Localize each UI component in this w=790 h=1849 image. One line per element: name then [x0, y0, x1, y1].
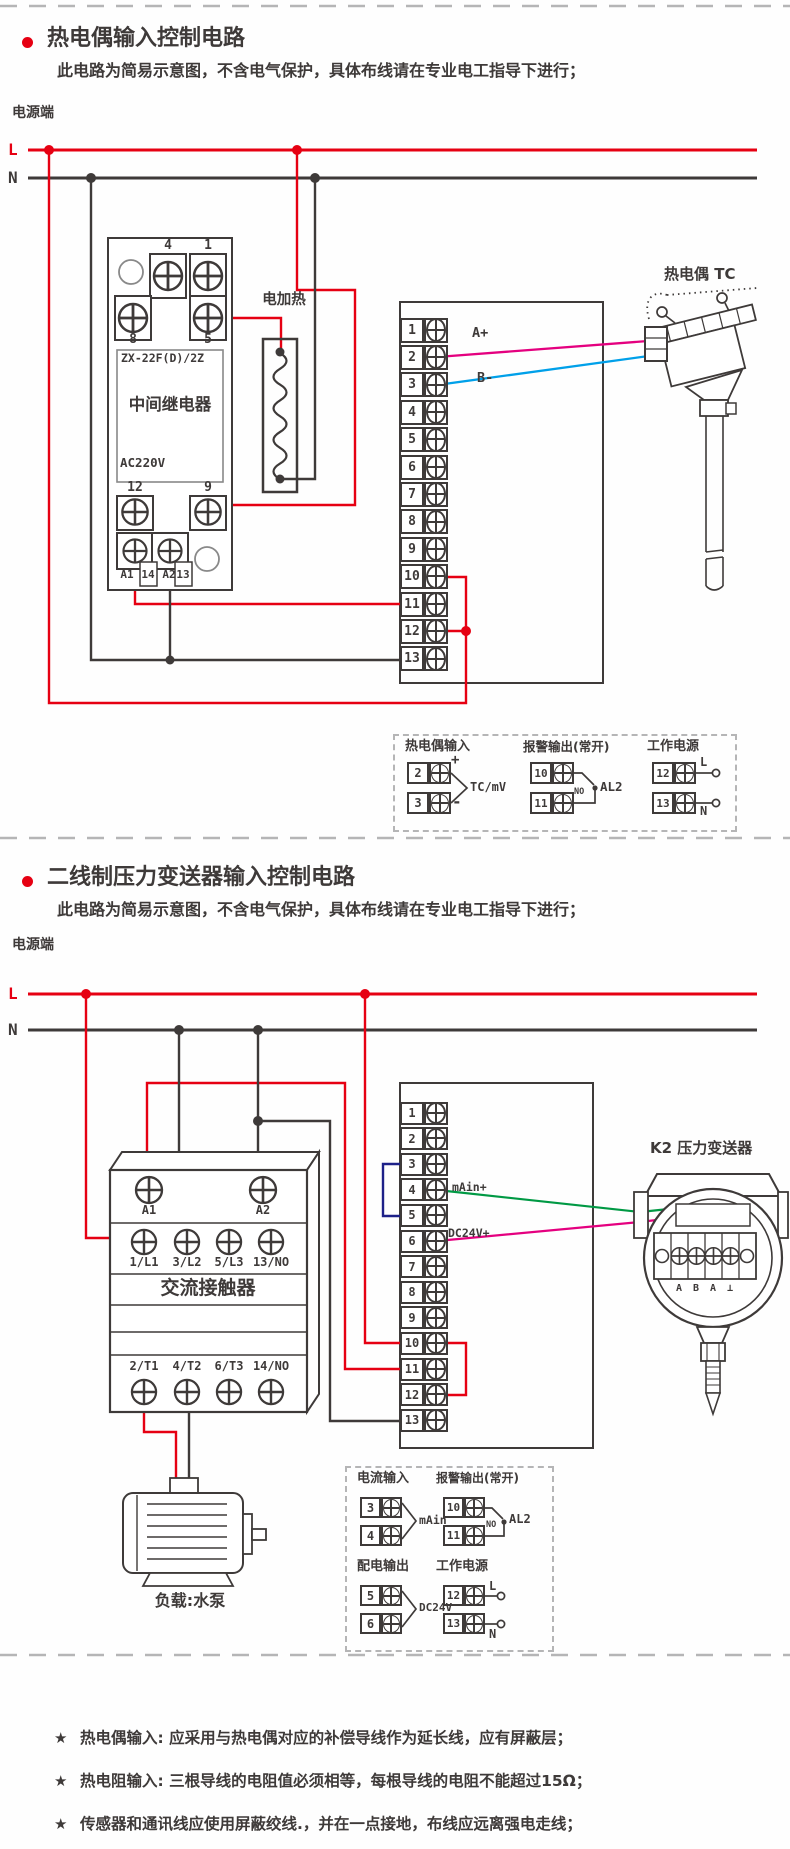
alarm-name-label: AL2 [600, 780, 623, 794]
legend-terminal-13: 13 [652, 792, 674, 814]
legend2-terminal-11: 11 [443, 1525, 464, 1546]
power-l-label: L [700, 756, 707, 769]
terminal-screw-icon [424, 1255, 448, 1278]
relay-terminal-14: 14 [141, 569, 154, 581]
terminal-number: 3 [400, 1153, 424, 1176]
terminal-screw-icon [424, 1383, 448, 1406]
terminal-row-7: 7 [400, 482, 448, 507]
terminal-row-1: 1 [400, 1102, 448, 1125]
terminal-number: 1 [400, 318, 424, 343]
s2-legend-alarm-title: 报警输出(常开) [436, 1472, 519, 1485]
terminal-row-2: 2 [400, 1127, 448, 1150]
s1-line-n-label: N [8, 169, 18, 187]
power2-l-label: L [489, 1580, 496, 1593]
heater-label: 电加热 [262, 292, 306, 308]
terminal-screw-icon [424, 1409, 448, 1432]
wire-a-plus-label: A+ [472, 326, 488, 341]
alarm2-no-label: NO [486, 1521, 496, 1531]
relay-terminal-8: 8 [129, 333, 137, 348]
terminal-number: 13 [400, 646, 424, 671]
s1-line-l-label: L [8, 141, 18, 159]
terminal-number: 12 [400, 1383, 424, 1406]
terminal-number: 8 [400, 509, 424, 534]
terminal-number: 12 [400, 619, 424, 644]
terminal-screw-icon [424, 1332, 448, 1355]
terminal-row-3: 3 [400, 372, 448, 397]
terminal-row-10: 10 [400, 1332, 448, 1355]
legend-terminal-11: 11 [530, 792, 552, 814]
relay-terminal-a2: A2 [162, 569, 175, 581]
thermocouple [645, 288, 767, 590]
terminal-number: 9 [400, 537, 424, 562]
terminal-number: 4 [400, 1178, 424, 1201]
terminal-screw-icon [424, 400, 448, 425]
s2-line-n-label: N [8, 1021, 18, 1039]
tc-signal-label: TC/mV [470, 781, 506, 794]
legend-screw-icon [674, 762, 696, 784]
s1-power-rails [28, 150, 757, 178]
terminal-row-13: 13 [400, 646, 448, 671]
terminal-row-1: 1 [400, 318, 448, 343]
terminal-number: 7 [400, 1255, 424, 1278]
tc-plus-label: + [451, 753, 459, 769]
contactor-5l3: 5/L3 [215, 1256, 244, 1269]
terminal-number: 7 [400, 482, 424, 507]
terminal-screw-icon [424, 1127, 448, 1150]
terminal-number: 5 [400, 1204, 424, 1227]
terminal-row-8: 8 [400, 1281, 448, 1304]
s2-power-rails [28, 994, 757, 1030]
note-text-2: 热电阻输入: 三根导线的电阻值必须相等，每根导线的电阻不能超过15Ω； [80, 1773, 591, 1790]
legend2-terminal-3: 3 [360, 1497, 381, 1518]
legend-screw-icon [429, 792, 451, 814]
contactor-1l1: 1/L1 [130, 1256, 159, 1269]
terminal-number: 6 [400, 1230, 424, 1253]
relay-terminal-a1: A1 [120, 569, 133, 581]
s2-line-l-label: L [8, 985, 18, 1003]
legend-terminal-2: 2 [407, 762, 429, 784]
relay-model: ZX-22F(D)/2Z [121, 352, 204, 365]
legend2-terminal-4: 4 [360, 1525, 381, 1546]
terminal-number: 11 [400, 592, 424, 617]
terminal-row-8: 8 [400, 509, 448, 534]
legend-screw-icon [674, 792, 696, 814]
ma-in-label: mAin+ [452, 1181, 487, 1194]
section1-bullet [22, 37, 33, 48]
contactor-14no: 14/NO [253, 1360, 289, 1373]
s2-legend-current-title: 电流输入 [357, 1472, 409, 1487]
legend-terminal-3: 3 [407, 792, 429, 814]
dist-signal-label: DC24V [419, 1602, 452, 1614]
legend-terminal-12: 12 [652, 762, 674, 784]
relay-terminal-1: 1 [204, 239, 212, 254]
terminal-row-9: 9 [400, 1306, 448, 1329]
terminal-screw-icon [424, 619, 448, 644]
legend-screw-icon [381, 1497, 402, 1518]
section1-title: 热电偶输入控制电路 [47, 27, 245, 52]
legend-screw-icon [552, 762, 574, 784]
motor-pump [123, 1478, 266, 1586]
transmitter-terminal-b: B [693, 1283, 699, 1294]
note-text-3: 传感器和通讯线应使用屏蔽绞线.，并在一点接地，布线应远离强电走线； [80, 1816, 582, 1833]
s2-power-terminal-label: 电源端 [12, 938, 54, 954]
terminal-screw-icon [424, 372, 448, 397]
terminal-row-3: 3 [400, 1153, 448, 1176]
current-signal-label: mAin [419, 1514, 447, 1527]
terminal-row-10: 10 [400, 564, 448, 589]
s1-power-terminal-label: 电源端 [12, 106, 54, 122]
legend-screw-icon [381, 1525, 402, 1546]
terminal-number: 4 [400, 400, 424, 425]
s1-legend-tc-title: 热电偶输入 [405, 740, 470, 755]
legend-screw-icon [429, 762, 451, 784]
terminal-number: 1 [400, 1102, 424, 1125]
dc24-label: DC24V+ [448, 1227, 490, 1240]
terminal-row-7: 7 [400, 1255, 448, 1278]
s2-legend-power-title: 工作电源 [436, 1560, 488, 1575]
s1-legend-power-title: 工作电源 [647, 740, 699, 755]
transmitter-terminal-a: A [676, 1283, 682, 1294]
legend2-terminal-5: 5 [360, 1585, 381, 1606]
alarm2-name-label: AL2 [509, 1513, 531, 1526]
terminal-number: 8 [400, 1281, 424, 1304]
thermocouple-label: 热电偶 TC [664, 266, 735, 283]
relay-terminal-9: 9 [204, 481, 212, 496]
wire-b-minus-label: B- [477, 371, 493, 386]
terminal-screw-icon [424, 455, 448, 480]
legend-screw-icon [381, 1585, 402, 1606]
terminal-screw-icon [424, 345, 448, 370]
legend-screw-icon [464, 1613, 485, 1634]
relay-terminal-13: 13 [176, 569, 189, 581]
section1-subtitle: 此电路为简易示意图，不含电气保护，具体布线请在专业电工指导下进行； [57, 62, 585, 80]
s1-legend-alarm-title: 报警输出(常开) [523, 740, 609, 754]
s2-legend-dist-title: 配电输出 [357, 1560, 409, 1575]
note-star-2: ★ [54, 1773, 67, 1790]
note-star-1: ★ [54, 1730, 67, 1747]
contactor-name: 交流接触器 [160, 1278, 255, 1299]
terminal-row-5: 5 [400, 427, 448, 452]
terminal-row-5: 5 [400, 1204, 448, 1227]
terminal-row-4: 4 [400, 1178, 448, 1201]
legend-screw-icon [552, 792, 574, 814]
relay-terminal-5: 5 [204, 333, 212, 348]
terminal-number: 10 [400, 1332, 424, 1355]
terminal-number: 6 [400, 455, 424, 480]
section2-title: 二线制压力变送器输入控制电路 [47, 866, 355, 891]
terminal-number: 13 [400, 1409, 424, 1432]
terminal-number: 2 [400, 1127, 424, 1150]
relay-voltage: AC220V [120, 456, 165, 470]
motor-label: 负载:水泵 [155, 1592, 225, 1610]
heater [263, 339, 297, 492]
terminal-screw-icon [424, 537, 448, 562]
terminal-row-6: 6 [400, 1230, 448, 1253]
terminal-row-4: 4 [400, 400, 448, 425]
terminal-row-11: 11 [400, 1358, 448, 1381]
terminal-screw-icon [424, 1204, 448, 1227]
contactor-2t1: 2/T1 [130, 1360, 159, 1373]
terminal-screw-icon [424, 1102, 448, 1125]
transmitter-label: K2 压力变送器 [650, 1140, 752, 1157]
legend-screw-icon [464, 1525, 485, 1546]
terminal-screw-icon [424, 1281, 448, 1304]
tc-minus-label: - [452, 793, 462, 811]
legend-screw-icon [464, 1497, 485, 1518]
note-text-1: 热电偶输入: 应采用与热电偶对应的补偿导线作为延长线，应有屏蔽层； [80, 1730, 572, 1747]
legend-terminal-10: 10 [530, 762, 552, 784]
terminal-row-13: 13 [400, 1409, 448, 1432]
relay-name: 中间继电器 [129, 396, 212, 414]
power2-n-label: N [489, 1628, 496, 1641]
terminal-screw-icon [424, 646, 448, 671]
contactor-a1: A1 [142, 1204, 156, 1217]
terminal-number: 10 [400, 564, 424, 589]
terminal-row-12: 12 [400, 619, 448, 644]
terminal-screw-icon [424, 1178, 448, 1201]
legend-screw-icon [464, 1585, 485, 1606]
terminal-row-6: 6 [400, 455, 448, 480]
terminal-row-2: 2 [400, 345, 448, 370]
terminal-screw-icon [424, 564, 448, 589]
wiring-diagram-page: 热电偶输入控制电路 此电路为简易示意图，不含电气保护，具体布线请在专业电工指导下… [0, 0, 790, 1849]
terminal-row-11: 11 [400, 592, 448, 617]
terminal-screw-icon [424, 592, 448, 617]
terminal-screw-icon [424, 1230, 448, 1253]
contactor-4t2: 4/T2 [173, 1360, 202, 1373]
terminal-screw-icon [424, 1306, 448, 1329]
power-n-label: N [700, 805, 707, 818]
legend-screw-icon [381, 1613, 402, 1634]
contactor-3l2: 3/L2 [173, 1256, 202, 1269]
contactor-6t3: 6/T3 [215, 1360, 244, 1373]
terminal-screw-icon [424, 509, 448, 534]
section2-subtitle: 此电路为简易示意图，不含电气保护，具体布线请在专业电工指导下进行； [57, 901, 585, 919]
transmitter-terminal-gnd: ⊥ [727, 1283, 733, 1294]
relay-terminal-4: 4 [164, 239, 172, 254]
terminal-screw-icon [424, 1153, 448, 1176]
terminal-screw-icon [424, 482, 448, 507]
terminal-row-9: 9 [400, 537, 448, 562]
terminal-number: 11 [400, 1358, 424, 1381]
transmitter-terminal-a2: A [710, 1283, 716, 1294]
terminal-number: 5 [400, 427, 424, 452]
contactor-a2: A2 [256, 1204, 270, 1217]
terminal-number: 2 [400, 345, 424, 370]
legend2-terminal-13: 13 [443, 1613, 464, 1634]
relay-terminal-12: 12 [127, 481, 143, 496]
section2-bullet [22, 876, 33, 887]
terminal-screw-icon [424, 427, 448, 452]
contactor-13no: 13/NO [253, 1256, 289, 1269]
legend2-terminal-6: 6 [360, 1613, 381, 1634]
terminal-row-12: 12 [400, 1383, 448, 1406]
note-star-3: ★ [54, 1816, 67, 1833]
terminal-number: 3 [400, 372, 424, 397]
terminal-number: 9 [400, 1306, 424, 1329]
alarm-no-label: NO [574, 788, 584, 798]
terminal-screw-icon [424, 318, 448, 343]
terminal-screw-icon [424, 1358, 448, 1381]
